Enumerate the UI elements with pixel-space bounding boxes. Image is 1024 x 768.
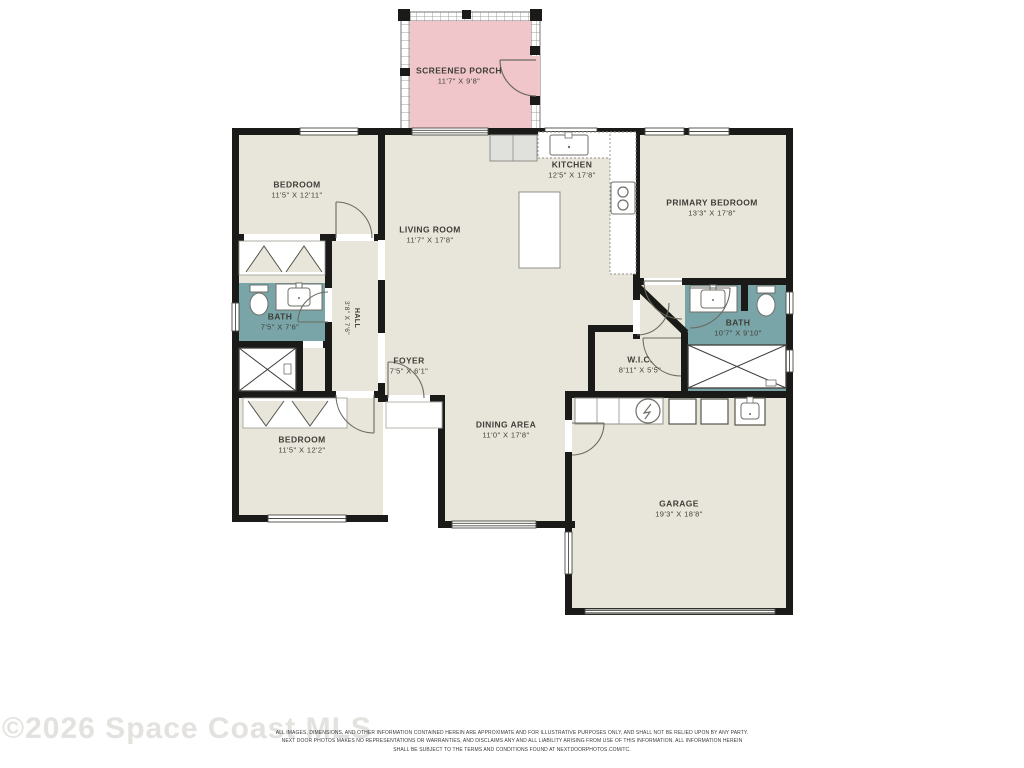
dryer-icon bbox=[701, 399, 728, 424]
room-dims: 8'11" X 5'5" bbox=[619, 366, 661, 377]
toilet-icon-right bbox=[757, 286, 775, 316]
room-label-bedroom-top: BEDROOM 11'5" X 12'11" bbox=[271, 178, 322, 201]
room-name: LIVING ROOM bbox=[399, 223, 461, 235]
room-label-bedroom-bottom: BEDROOM 11'5" X 12'2" bbox=[278, 433, 325, 456]
room-label-kitchen: KITCHEN 12'5" X 17'8" bbox=[548, 158, 596, 181]
room-dims: 13'3" X 17'8" bbox=[666, 209, 757, 220]
room-dims: 11'5" X 12'11" bbox=[271, 191, 322, 202]
room-dims: 3'8" X 7'6" bbox=[341, 301, 350, 335]
fridge-icon bbox=[490, 135, 537, 161]
room-label-bath-right: BATH 10'7" X 9'10" bbox=[714, 316, 762, 339]
room-name: KITCHEN bbox=[548, 158, 596, 170]
tub-icon-left bbox=[239, 348, 296, 391]
room-name: BATH bbox=[261, 310, 299, 322]
room-label-foyer: FOYER 7'5" X 6'1" bbox=[390, 354, 428, 377]
room-name: BEDROOM bbox=[278, 433, 325, 445]
room-dims: 11'5" X 12'2" bbox=[278, 446, 325, 457]
room-dims: 19'3" X 18'8" bbox=[655, 510, 703, 521]
room-dims: 10'7" X 9'10" bbox=[714, 329, 762, 340]
room-name: FOYER bbox=[390, 354, 428, 366]
room-dims: 11'7" X 9'8" bbox=[416, 77, 502, 88]
kitchen-island bbox=[519, 192, 560, 268]
disclaimer-line-3: SHALL BE SUBJECT TO THE TERMS AND CONDIT… bbox=[262, 746, 762, 754]
room-name: BATH bbox=[714, 316, 762, 328]
room-label-screened-porch: SCREENED PORCH 11'7" X 9'8" bbox=[416, 64, 502, 87]
room-name: DINING AREA bbox=[476, 418, 536, 430]
closet-bifold-top bbox=[239, 241, 325, 275]
room-name: W.I.C. bbox=[619, 353, 661, 365]
tub-icon-right bbox=[688, 345, 786, 388]
room-name: PRIMARY BEDROOM bbox=[666, 196, 757, 208]
room-name: GARAGE bbox=[655, 497, 703, 509]
disclaimer-line-2: NEXT DOOR PHOTOS MAKES NO REPRESENTATION… bbox=[262, 737, 762, 745]
washer-icon bbox=[669, 399, 696, 424]
room-dims: 7'5" X 6'1" bbox=[390, 367, 428, 378]
room-name: HALL bbox=[351, 301, 361, 335]
room-dims: 11'7" X 17'8" bbox=[399, 236, 461, 247]
kitchen-counter-top bbox=[538, 132, 612, 158]
room-label-dining-area: DINING AREA 11'0" X 17'8" bbox=[476, 418, 536, 441]
room-label-hall: HALL 3'8" X 7'6" bbox=[341, 301, 361, 335]
room-dims: 11'0" X 17'8" bbox=[476, 431, 536, 442]
disclaimer-line-1: ALL IMAGES, DIMENSIONS, AND OTHER INFORM… bbox=[262, 729, 762, 737]
vanity-sink-icon-left bbox=[276, 283, 322, 310]
water-heater-icon bbox=[636, 399, 660, 423]
room-name: BEDROOM bbox=[271, 178, 322, 190]
room-label-wic: W.I.C. 8'11" X 5'5" bbox=[619, 353, 661, 376]
room-label-primary-bedroom: PRIMARY BEDROOM 13'3" X 17'8" bbox=[666, 196, 757, 219]
disclaimer-text: ALL IMAGES, DIMENSIONS, AND OTHER INFORM… bbox=[262, 729, 762, 754]
floor-plan-page: SCREENED PORCH 11'7" X 9'8" BEDROOM 11'5… bbox=[0, 0, 1024, 768]
closet-bifold-bottom bbox=[243, 398, 347, 428]
floor-plan-drawing bbox=[0, 0, 1024, 768]
room-name: SCREENED PORCH bbox=[416, 64, 502, 76]
room-label-living-room: LIVING ROOM 11'7" X 17'8" bbox=[399, 223, 461, 246]
kitchen-counter-right bbox=[610, 132, 636, 274]
front-stoop bbox=[386, 402, 442, 428]
room-dims: 7'5" X 7'6" bbox=[261, 323, 299, 334]
room-label-bath-left: BATH 7'5" X 7'6" bbox=[261, 310, 299, 333]
room-dims: 12'5" X 17'8" bbox=[548, 171, 596, 182]
utility-sink-icon bbox=[735, 397, 765, 425]
room-label-garage: GARAGE 19'3" X 18'8" bbox=[655, 497, 703, 520]
